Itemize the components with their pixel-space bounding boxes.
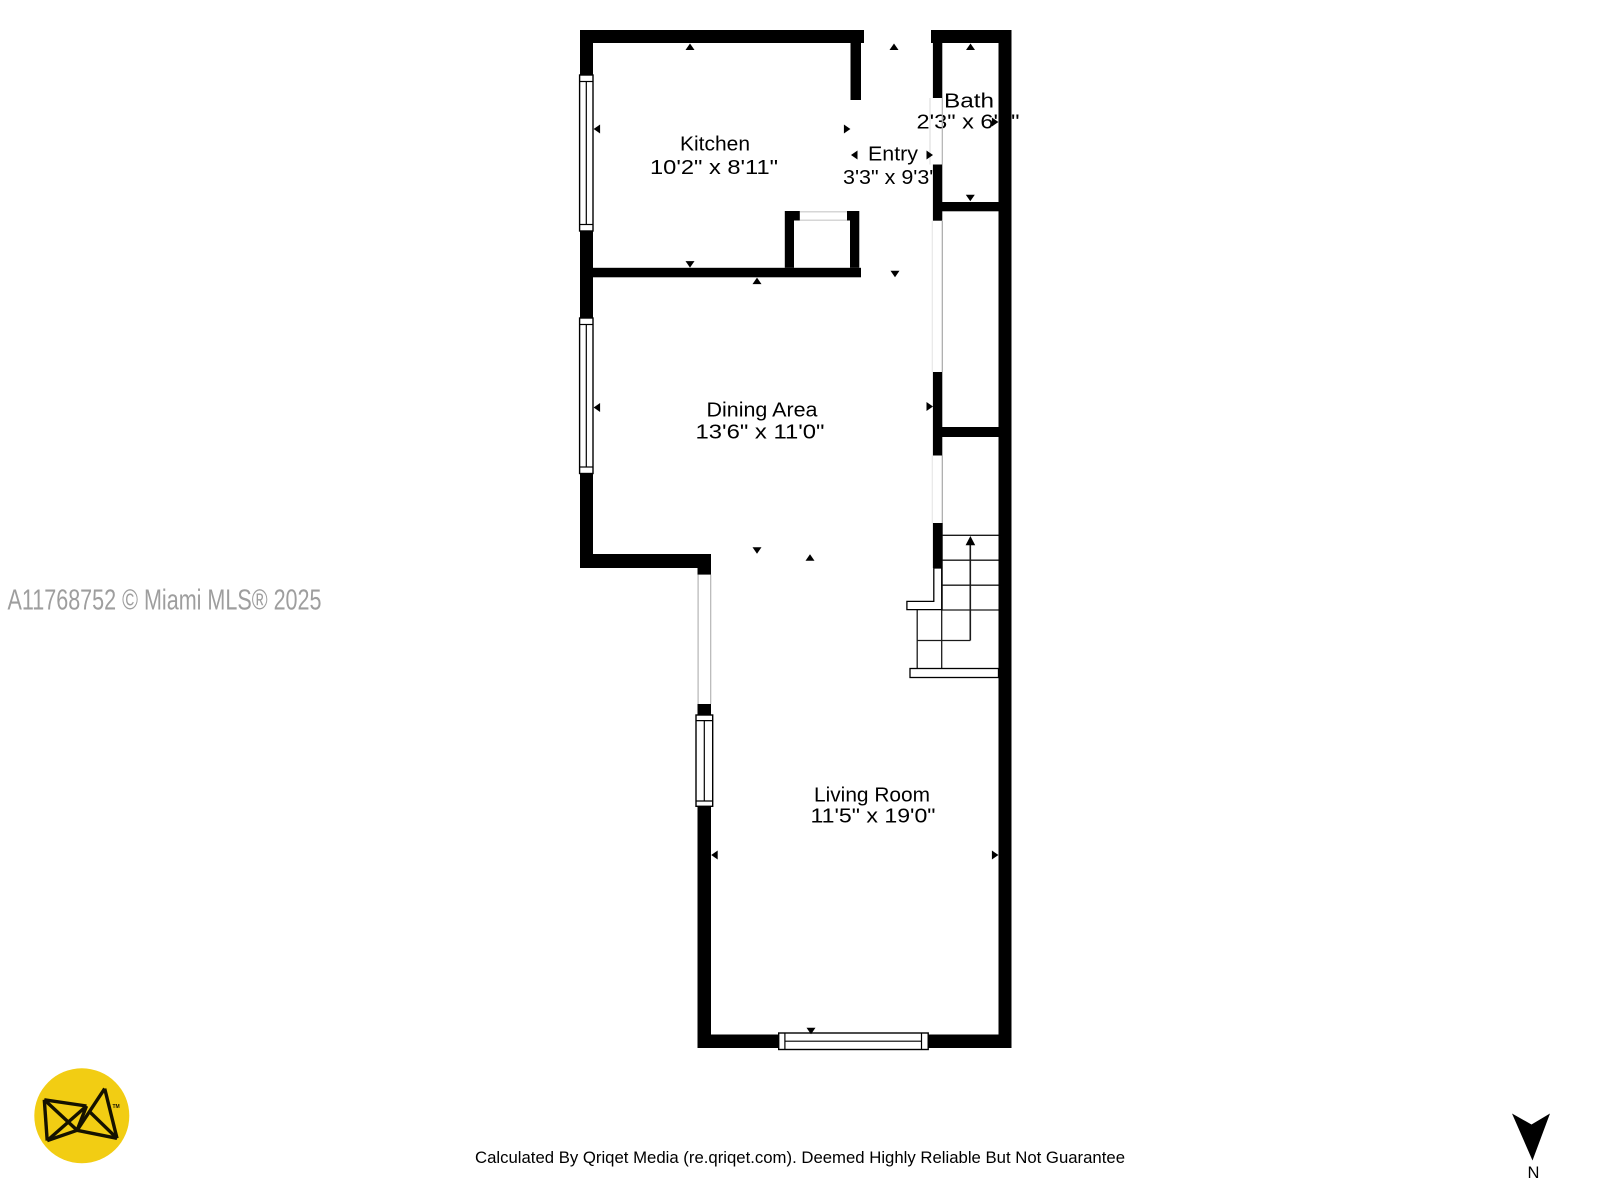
svg-text:Entry: Entry [868,143,918,165]
svg-text:10'2" x 8'11": 10'2" x 8'11" [650,157,778,179]
svg-text:3'3" x 9'3": 3'3" x 9'3" [843,167,937,189]
svg-text:A11768752 © Miami MLS® 2025: A11768752 © Miami MLS® 2025 [8,585,322,617]
svg-text:Bath: Bath [944,90,994,112]
svg-text:Dining Area: Dining Area [707,399,819,421]
svg-text:Kitchen: Kitchen [680,133,750,155]
svg-text:11'5" x 19'0": 11'5" x 19'0" [811,805,936,827]
svg-text:Living Room: Living Room [814,784,930,806]
svg-text:13'6" x 11'0": 13'6" x 11'0" [696,421,825,443]
svg-text:Calculated By Qriqet Media (re: Calculated By Qriqet Media (re.qriqet.co… [475,1149,1125,1167]
svg-text:N: N [1528,1164,1540,1182]
svg-text:TM: TM [113,1104,120,1110]
